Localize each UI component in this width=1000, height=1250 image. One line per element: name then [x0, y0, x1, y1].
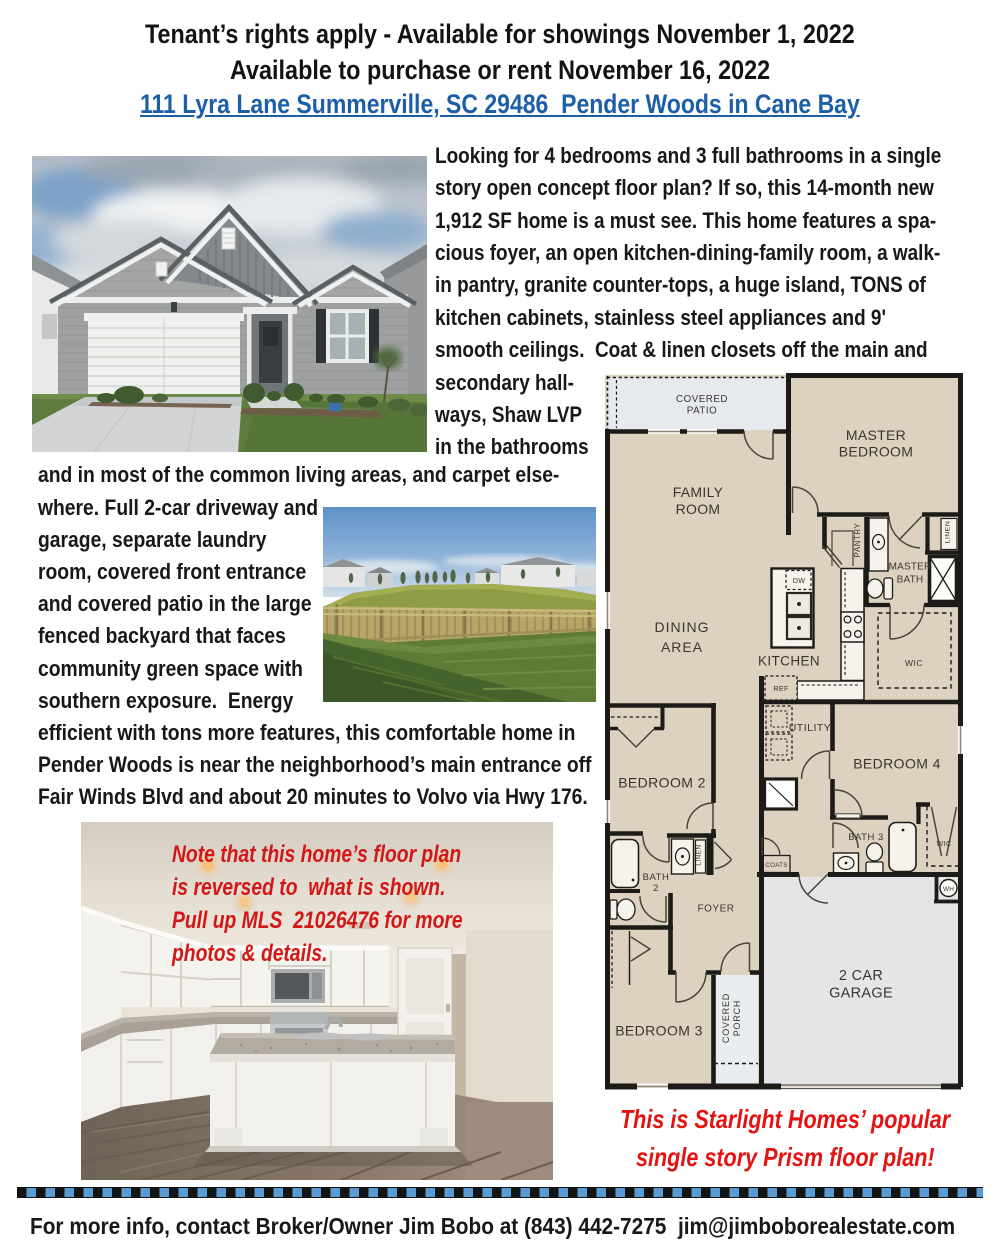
- svg-text:REF: REF: [773, 684, 789, 693]
- svg-text:BATH 3: BATH 3: [848, 832, 884, 843]
- svg-text:COVERED: COVERED: [721, 993, 731, 1043]
- svg-text:FOYER: FOYER: [698, 904, 735, 915]
- svg-text:MASTER: MASTER: [889, 562, 932, 573]
- svg-text:MASTER: MASTER: [846, 427, 906, 443]
- svg-text:BEDROOM 2: BEDROOM 2: [618, 775, 706, 791]
- svg-text:KITCHEN: KITCHEN: [758, 654, 820, 669]
- svg-text:BEDROOM 4: BEDROOM 4: [853, 756, 941, 772]
- svg-text:GARAGE: GARAGE: [829, 986, 893, 1002]
- svg-text:WIC: WIC: [905, 658, 923, 668]
- svg-text:DINING: DINING: [655, 619, 710, 635]
- svg-text:WH: WH: [943, 886, 954, 893]
- svg-text:2 CAR: 2 CAR: [839, 968, 883, 984]
- svg-text:UTILITY: UTILITY: [789, 722, 832, 734]
- svg-text:PATIO: PATIO: [687, 406, 717, 417]
- svg-text:COVERED: COVERED: [676, 394, 728, 405]
- svg-text:COATS: COATS: [765, 862, 787, 869]
- svg-text:BATH: BATH: [897, 575, 924, 586]
- svg-text:LINEN: LINEN: [696, 844, 703, 865]
- svg-text:WIC: WIC: [936, 841, 951, 848]
- svg-text:DW: DW: [793, 576, 806, 585]
- svg-text:PANTRY: PANTRY: [853, 522, 862, 557]
- svg-text:ROOM: ROOM: [676, 501, 721, 517]
- svg-text:2: 2: [653, 883, 659, 894]
- svg-text:BATH: BATH: [643, 872, 670, 883]
- svg-text:BEDROOM: BEDROOM: [839, 444, 913, 460]
- svg-text:AREA: AREA: [661, 639, 703, 655]
- svg-text:FAMILY: FAMILY: [673, 484, 724, 500]
- svg-text:PORCH: PORCH: [732, 1000, 742, 1037]
- svg-text:BEDROOM 3: BEDROOM 3: [615, 1023, 703, 1039]
- svg-text:LINEN: LINEN: [945, 521, 952, 544]
